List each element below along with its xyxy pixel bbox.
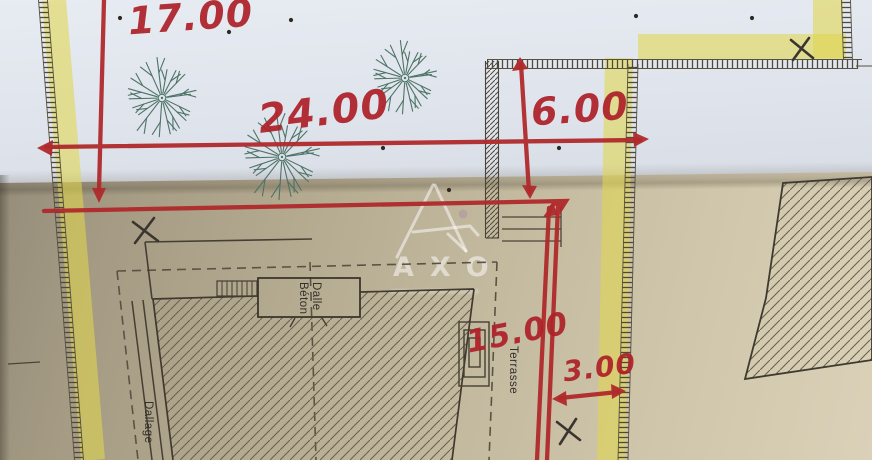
axo-watermark-glyph [397,185,478,257]
dim-3-label: 3.00 [562,350,638,387]
terrasse-label: Terrasse [506,346,519,394]
neighbour-building [745,177,872,379]
dalle-beton-label: Dalle Béton [296,282,322,315]
dalle-label-line2: Béton [296,282,309,315]
dalle-label-line1: Dalle [309,282,322,315]
dallage-label: Dallage [141,401,154,444]
dim-6-label: 6.00 [530,87,630,132]
site-plan-linework [0,0,872,460]
site-plan-photo: AXO [0,0,872,460]
dim-17-label: 17.00 [127,0,255,40]
